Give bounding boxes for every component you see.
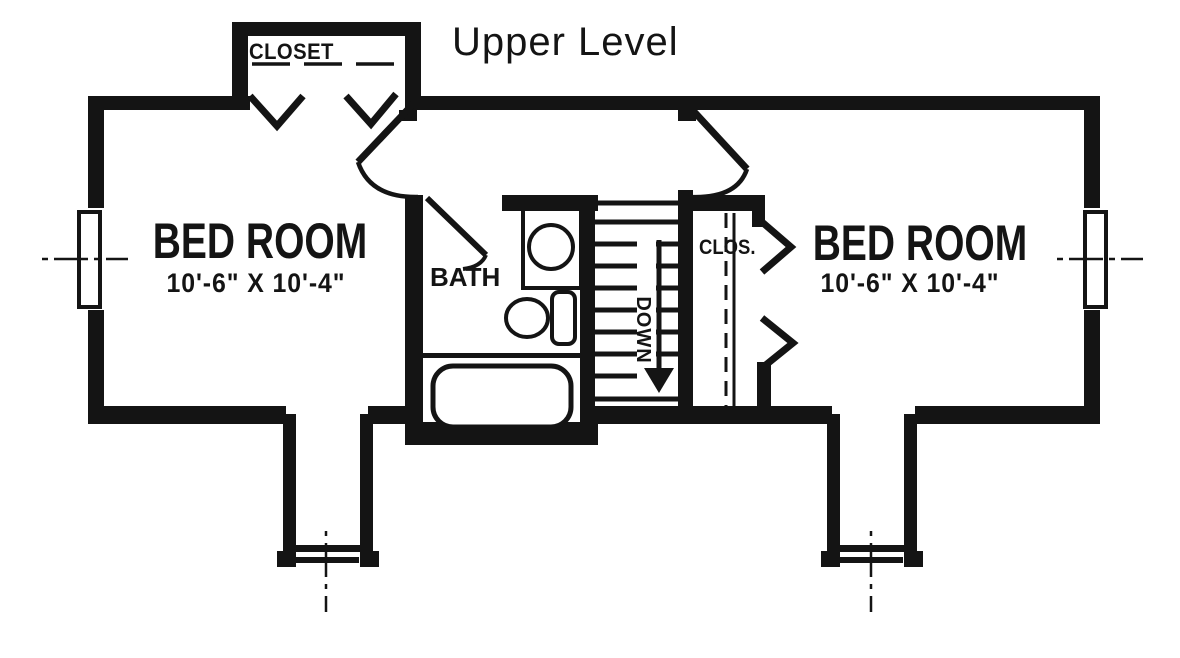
- floor-plan-drawing: [0, 0, 1180, 658]
- bathtub-icon: [433, 366, 571, 427]
- bath-fixtures: [433, 209, 581, 427]
- top-closet-walls: [232, 22, 421, 126]
- left-window: [42, 208, 128, 310]
- plan-title: Upper Level: [452, 22, 679, 62]
- bedroom-right-label: BED ROOM: [811, 218, 1029, 268]
- floor-plan: Upper Level CLOSET BED ROOM 10'-6" X 10'…: [0, 0, 1180, 658]
- bifold-door-chevron: [762, 318, 793, 368]
- door-leaf: [427, 198, 486, 255]
- door-swing-arc: [358, 162, 418, 197]
- bifold-door-chevron: [250, 96, 303, 126]
- toilet-icon: [506, 299, 548, 337]
- right-dormer: [821, 414, 923, 612]
- toilet-tank-icon: [552, 292, 575, 344]
- hall-closet-label: CLOS.: [699, 237, 755, 258]
- bedroom-right-dimensions: 10'-6" X 10'-4": [781, 270, 1039, 297]
- sink-icon: [529, 225, 573, 269]
- door-swing-arc: [690, 169, 747, 197]
- window-icon: [289, 545, 367, 552]
- bath-label: BATH: [430, 264, 500, 290]
- bifold-door-chevron: [346, 94, 396, 124]
- bedroom-left-dimensions: 10'-6" X 10'-4": [127, 270, 385, 297]
- bedroom-left-label: BED ROOM: [151, 216, 369, 266]
- stairs-down-label: DOWN: [633, 296, 653, 363]
- right-window: [1057, 208, 1143, 310]
- door-leaf: [358, 103, 414, 162]
- door-leaf: [686, 103, 747, 169]
- closet-top-label: CLOSET: [249, 41, 334, 63]
- bifold-door-chevron: [762, 222, 791, 272]
- left-dormer: [277, 414, 379, 612]
